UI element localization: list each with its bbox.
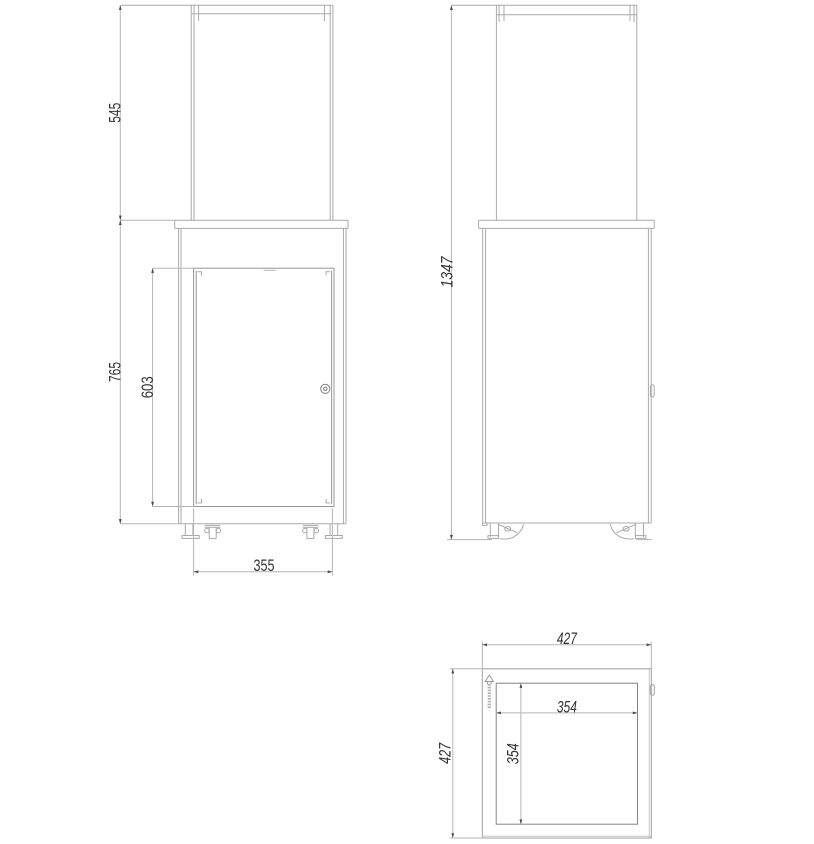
svg-text:1347: 1347 <box>438 256 456 288</box>
svg-text:603: 603 <box>139 376 157 398</box>
svg-text:545: 545 <box>107 103 125 123</box>
svg-text:355: 355 <box>254 557 275 575</box>
svg-text:427: 427 <box>437 742 455 764</box>
svg-text:765: 765 <box>107 362 125 382</box>
svg-text:427: 427 <box>557 630 578 648</box>
svg-text:354: 354 <box>557 699 577 717</box>
svg-text:354: 354 <box>505 743 523 764</box>
